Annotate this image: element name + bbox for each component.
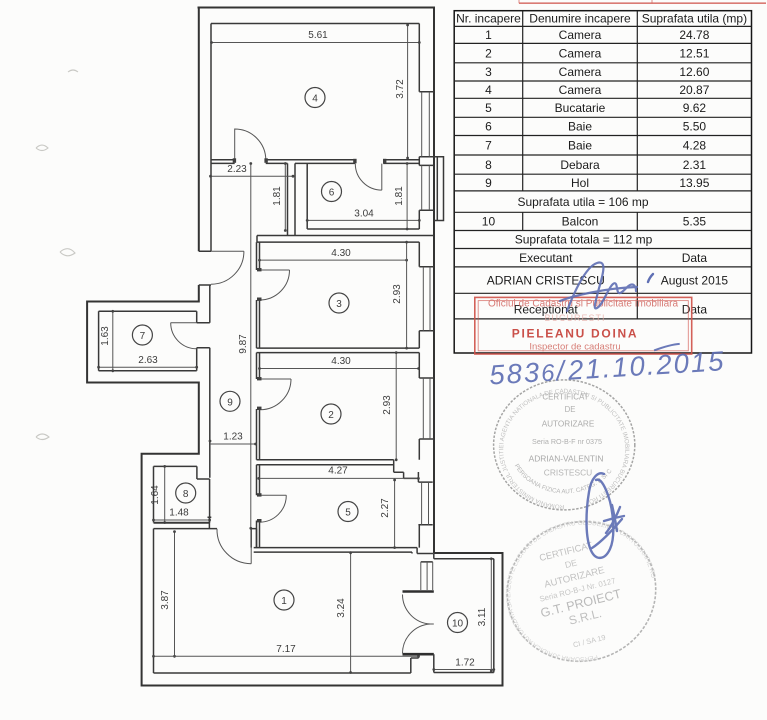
svg-text:5.35: 5.35 <box>683 215 707 229</box>
svg-text:8: 8 <box>183 489 189 500</box>
svg-text:1: 1 <box>485 28 492 42</box>
svg-text:24.78: 24.78 <box>679 28 709 42</box>
svg-text:4.30: 4.30 <box>331 356 351 367</box>
svg-text:Debara: Debara <box>560 158 600 172</box>
svg-text:7: 7 <box>485 138 492 152</box>
svg-text:Suprafata utila (mp): Suprafata utila (mp) <box>642 12 747 26</box>
svg-text:9: 9 <box>485 176 492 190</box>
svg-text:2.31: 2.31 <box>683 158 707 172</box>
svg-text:5: 5 <box>485 101 492 115</box>
svg-text:Bucatarie: Bucatarie <box>555 101 606 115</box>
svg-text:August 2015: August 2015 <box>661 273 729 287</box>
svg-text:2: 2 <box>485 46 492 60</box>
svg-text:1.48: 1.48 <box>169 508 189 519</box>
svg-text:3: 3 <box>485 65 492 79</box>
svg-text:Balcon: Balcon <box>562 215 599 229</box>
svg-text:Suprafata utila = 106 mp: Suprafata utila = 106 mp <box>517 195 648 209</box>
svg-text:5.61: 5.61 <box>308 30 328 41</box>
svg-text:2.93: 2.93 <box>382 395 393 415</box>
svg-text:2.23: 2.23 <box>227 164 247 175</box>
svg-text:5.50: 5.50 <box>683 120 707 134</box>
svg-text:6: 6 <box>329 188 335 199</box>
svg-text:1.81: 1.81 <box>272 186 283 206</box>
svg-text:2.63: 2.63 <box>138 355 158 366</box>
svg-text:4.27: 4.27 <box>328 466 348 477</box>
svg-text:Oficiul de Cadastru si Publici: Oficiul de Cadastru si Publicitate Imobi… <box>488 299 679 310</box>
svg-text:Seria RO-B-F nr 0375: Seria RO-B-F nr 0375 <box>532 437 602 446</box>
svg-text:20.87: 20.87 <box>679 83 709 97</box>
svg-text:1.23: 1.23 <box>223 432 243 443</box>
svg-text:4: 4 <box>312 94 318 105</box>
svg-text:9: 9 <box>227 397 233 408</box>
svg-text:4: 4 <box>485 83 492 97</box>
svg-text:ADRIAN CRISTESCU: ADRIAN CRISTESCU <box>487 273 605 287</box>
svg-text:12.51: 12.51 <box>679 46 709 60</box>
svg-text:1.81: 1.81 <box>394 186 405 206</box>
svg-text:Suprafata totala = 112 mp: Suprafata totala = 112 mp <box>515 233 653 247</box>
svg-text:3.87: 3.87 <box>160 590 171 610</box>
svg-text:CERTIFICAT: CERTIFICAT <box>542 393 588 402</box>
svg-text:Nr. incapere: Nr. incapere <box>456 12 521 26</box>
svg-text:2: 2 <box>328 410 334 421</box>
svg-text:Camera: Camera <box>559 46 602 60</box>
svg-text:3: 3 <box>336 299 342 310</box>
svg-text:1: 1 <box>281 596 287 607</box>
svg-text:3.04: 3.04 <box>354 209 374 220</box>
svg-text:DE: DE <box>565 405 576 414</box>
svg-text:3.24: 3.24 <box>336 598 347 618</box>
svg-text:6: 6 <box>485 120 492 134</box>
svg-text:Hol: Hol <box>571 176 589 190</box>
svg-text:Executant: Executant <box>519 251 573 265</box>
svg-text:Camera: Camera <box>559 83 602 97</box>
svg-text:10: 10 <box>452 619 464 630</box>
svg-text:9.62: 9.62 <box>683 101 707 115</box>
svg-text:10: 10 <box>482 215 496 229</box>
svg-text:Denumire incapere: Denumire incapere <box>529 12 631 26</box>
svg-text:5: 5 <box>345 508 351 519</box>
svg-text:Camera: Camera <box>559 65 602 79</box>
svg-text:8: 8 <box>485 158 492 172</box>
svg-text:Inspector de cadastru: Inspector de cadastru <box>529 342 620 353</box>
svg-text:4.28: 4.28 <box>683 138 707 152</box>
svg-text:ADRIAN-VALENTIN: ADRIAN-VALENTIN <box>529 454 604 464</box>
svg-text:7.17: 7.17 <box>276 644 296 655</box>
svg-text:1.72: 1.72 <box>455 658 475 669</box>
svg-text:Camera: Camera <box>559 28 602 42</box>
svg-text:Baie: Baie <box>568 138 592 152</box>
svg-text:Data: Data <box>682 303 708 317</box>
svg-text:13.95: 13.95 <box>679 176 709 190</box>
svg-text:2.93: 2.93 <box>392 284 403 304</box>
svg-text:3.11: 3.11 <box>477 607 488 626</box>
svg-text:PIELEANU DOINA: PIELEANU DOINA <box>512 327 638 341</box>
svg-text:12.60: 12.60 <box>679 65 709 79</box>
svg-text:1.63: 1.63 <box>100 326 111 346</box>
svg-text:CRISTESCU: CRISTESCU <box>544 468 592 478</box>
svg-text:3.72: 3.72 <box>395 79 406 99</box>
svg-text:2.27: 2.27 <box>380 498 391 518</box>
svg-text:1.64: 1.64 <box>150 485 161 505</box>
svg-text:BUCURESTI: BUCURESTI <box>544 313 605 323</box>
svg-text:7: 7 <box>140 331 146 342</box>
svg-text:9.87: 9.87 <box>238 334 249 354</box>
svg-text:4.30: 4.30 <box>331 248 351 259</box>
svg-text:Baie: Baie <box>568 120 592 134</box>
svg-text:Data: Data <box>682 251 708 265</box>
svg-text:AUTORIZARE: AUTORIZARE <box>542 420 595 429</box>
